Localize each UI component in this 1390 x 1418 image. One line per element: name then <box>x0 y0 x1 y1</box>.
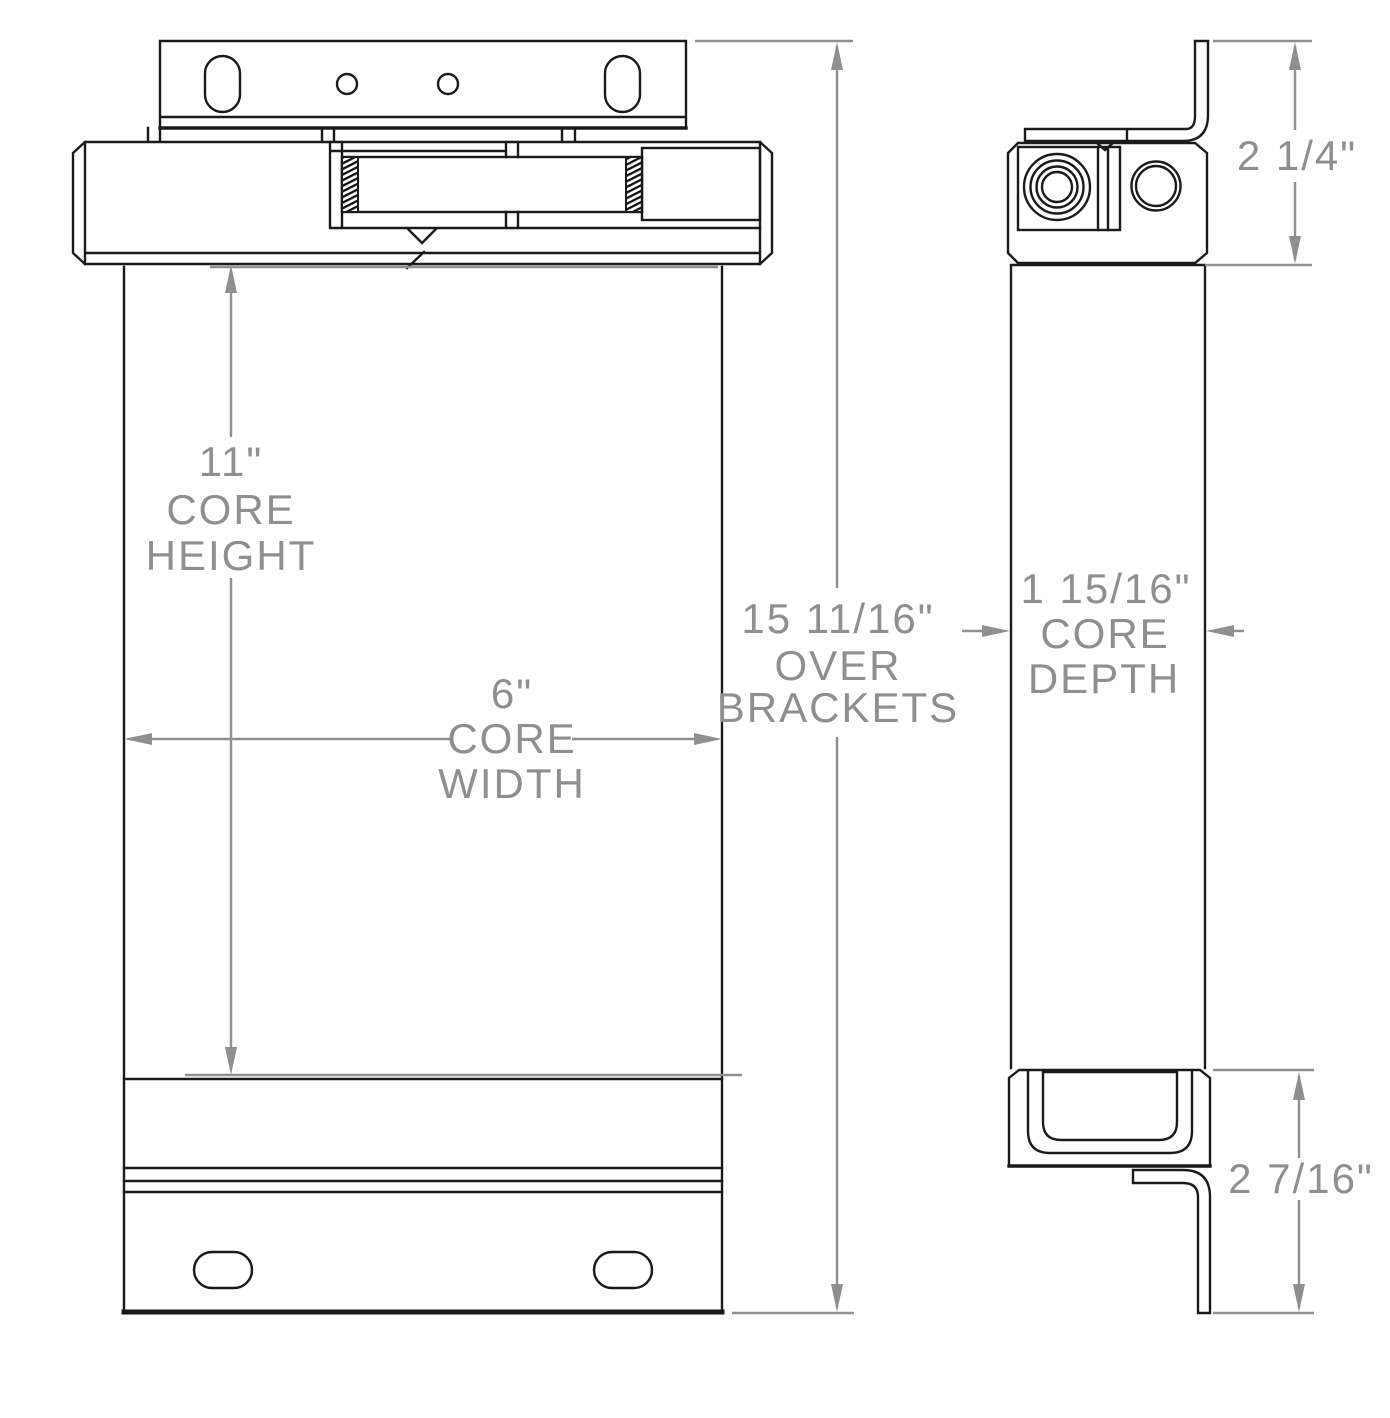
front-upper-tank-recess <box>330 142 760 228</box>
drawing-page: 11" CORE HEIGHT 6" CORE WIDTH 15 11/16" … <box>0 0 1390 1418</box>
dim-over-brackets-label1: OVER <box>774 642 901 689</box>
weld-tick <box>407 252 424 268</box>
dim-core-height-arrow-up <box>225 265 237 293</box>
front-top-bracket-feet <box>148 128 575 141</box>
side-bottom-tank-u-channel <box>1028 1072 1192 1153</box>
dim-top-bracket-value: 2 1/4" <box>1237 132 1357 179</box>
side-upper-tank <box>1008 143 1207 263</box>
port-small-bore <box>1136 166 1176 206</box>
front-bottom-bracket <box>124 1252 722 1312</box>
front-bottom-tank-lines <box>124 1079 722 1192</box>
port-large-bore <box>1042 172 1072 202</box>
front-coupler-body <box>642 148 760 220</box>
mounting-slot-bottom-right <box>594 1252 652 1288</box>
dim-core-depth-label2: DEPTH <box>1028 655 1180 702</box>
side-bottom-tank <box>1009 1070 1210 1166</box>
dimensions: 11" CORE HEIGHT 6" CORE WIDTH 15 11/16" … <box>124 41 1374 1313</box>
mounting-slot-bottom-left <box>194 1252 252 1288</box>
dim-bottom-bracket-height: 2 7/16" <box>1213 1070 1374 1313</box>
mounting-hole-top-2 <box>438 74 458 94</box>
mounting-slot-top-left <box>205 56 240 112</box>
side-bottom-bracket <box>1133 1170 1210 1313</box>
dim-core-width-value: 6" <box>491 670 533 717</box>
side-top-bracket-outline <box>1025 41 1208 141</box>
port-fitting-small <box>1132 162 1181 211</box>
dim-core-height-label1: CORE <box>166 486 295 533</box>
side-bottom-bracket-outline <box>1133 1170 1210 1313</box>
dim-core-height-value: 11" <box>199 438 264 485</box>
front-bottom-tank <box>124 1079 722 1192</box>
front-upper-tank-outline <box>73 142 772 264</box>
dim-core-depth-label1: CORE <box>1040 610 1169 657</box>
front-view <box>73 41 772 1312</box>
dim-core-depth-arrow-left <box>982 625 1010 637</box>
front-upper-tank <box>73 142 772 268</box>
dim-over-brackets-value: 15 11/16" <box>741 595 934 642</box>
dim-core-height: 11" CORE HEIGHT <box>146 265 742 1075</box>
front-top-bracket <box>148 41 686 141</box>
dim-over-brackets-label2: BRACKETS <box>717 684 959 731</box>
dim-top-bracket-height: 2 1/4" <box>1205 41 1357 265</box>
dim-core-height-label2: HEIGHT <box>146 532 317 579</box>
port-large-ring-2 <box>1031 161 1084 214</box>
technical-drawing-canvas: 11" CORE HEIGHT 6" CORE WIDTH 15 11/16" … <box>0 0 1390 1418</box>
front-core-side-edges <box>124 267 722 1312</box>
dim-core-width-label2: WIDTH <box>438 760 586 807</box>
dim-over-brackets: 15 11/16" OVER BRACKETS <box>695 41 959 1313</box>
mounting-slot-top-right <box>605 56 640 112</box>
dim-core-depth: 1 15/16" CORE DEPTH <box>962 565 1244 702</box>
dim-bottom-bracket-arrow-down <box>1293 1284 1305 1312</box>
dim-core-depth-value: 1 15/16" <box>1020 565 1191 612</box>
side-fitting-boss-lines <box>1097 143 1113 230</box>
dim-core-width-arrow-left <box>124 733 152 745</box>
thread-hatch-left <box>342 157 358 212</box>
side-top-bracket <box>1025 41 1208 141</box>
dim-core-width-arrow-right <box>694 733 722 745</box>
thread-hatch-right <box>626 157 642 212</box>
mounting-hole-top-1 <box>337 74 357 94</box>
port-large-ring-1 <box>1024 154 1090 220</box>
dim-core-width-label1: CORE <box>447 715 576 762</box>
dim-over-brackets-arrow-up <box>831 42 843 70</box>
dim-top-bracket-arrow-down <box>1289 236 1301 264</box>
dim-over-brackets-arrow-down <box>831 1284 843 1312</box>
dim-bottom-bracket-arrow-up <box>1293 1072 1305 1100</box>
dim-core-height-arrow-down <box>225 1047 237 1075</box>
front-upper-tank-inner-walls <box>85 142 760 264</box>
dim-bottom-bracket-value: 2 7/16" <box>1228 1155 1374 1202</box>
front-core <box>124 267 722 1312</box>
port-small-ring <box>1132 162 1181 211</box>
front-fitting-window <box>342 157 642 212</box>
dim-top-bracket-arrow-up <box>1289 42 1301 70</box>
dim-core-depth-arrow-right <box>1206 625 1234 637</box>
dim-core-width: 6" CORE WIDTH <box>124 670 722 807</box>
dim-core-height-extension-lines <box>185 267 742 1075</box>
weld-notch <box>408 229 436 243</box>
port-fitting-large <box>1024 154 1090 220</box>
